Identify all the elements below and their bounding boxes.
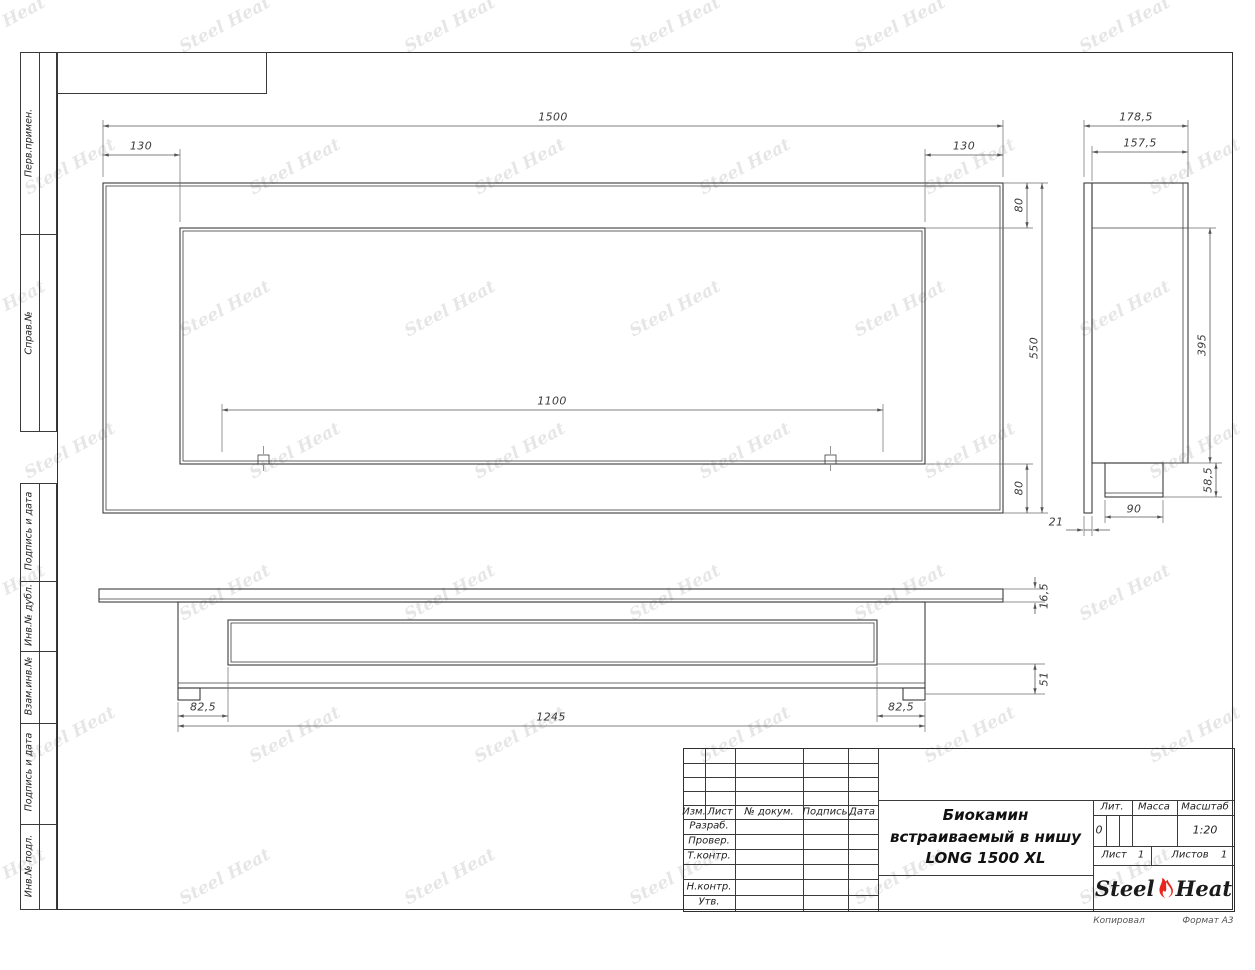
sidebar-label-vzam-inv: Взам.инв.№ (24, 657, 35, 715)
dim-front-right-offset: 130 (953, 140, 975, 153)
tb-col-izm: Изм. (682, 807, 706, 818)
watermark-text: Steel Heat (0, 0, 49, 57)
tb-sheet-value: 1 (1138, 850, 1144, 861)
tb-sheets-value: 1 (1221, 850, 1227, 861)
watermark-text: Steel Heat (626, 0, 724, 57)
sidebar-label-inv-podl: Инв.№ подл. (24, 835, 35, 898)
dim-bottom-flange-thickness: 16,5 (1038, 583, 1051, 609)
footer-format-label: Формат A3 (1182, 916, 1233, 926)
brand-logo: Steel Heat (1093, 865, 1234, 911)
tb-row-tcontrol: Т.контр. (687, 851, 730, 862)
document-title-line2: встраиваемый в нишу (890, 827, 1081, 849)
tb-scale-label: Масштаб (1181, 802, 1229, 813)
document-title-line3: LONG 1500 XL (926, 848, 1046, 870)
dim-side-overall-depth: 178,5 (1119, 111, 1153, 124)
document-title: Биокамин встраиваемый в нишу LONG 1500 X… (878, 800, 1093, 875)
corner-reference-box (57, 52, 267, 94)
dim-front-top-margin: 80 (1013, 198, 1026, 213)
tb-row-ncontrol: Н.контр. (687, 882, 732, 893)
tb-col-sign: Подпись (803, 807, 848, 818)
dim-bottom-left-inset: 82,5 (190, 701, 216, 714)
dim-side-body-depth: 157,5 (1123, 137, 1157, 150)
tb-col-list: Лист (707, 807, 732, 818)
sidebar-label-podpis-data-1: Подпись и дата (24, 492, 35, 571)
tb-row-approved: Утв. (699, 897, 720, 908)
dim-front-overall-width: 1500 (538, 111, 568, 124)
footer-copied-label: Копировал (1093, 916, 1144, 926)
tb-lit-value: 0 (1096, 824, 1103, 837)
watermark-text: Steel Heat (1076, 0, 1174, 57)
tb-col-doc: № докум. (744, 807, 793, 818)
dim-front-bottom-margin: 80 (1013, 481, 1026, 496)
tb-scale-value: 1:20 (1193, 824, 1218, 837)
tb-mass-label: Масса (1138, 802, 1170, 813)
dim-side-flange-offset: 21 (1049, 516, 1064, 529)
sidebar-label-sprav-no: Справ.№ (24, 311, 35, 354)
dim-bottom-right-inset: 82,5 (888, 701, 914, 714)
brand-heat: Heat (1176, 876, 1233, 901)
sidebar-label-inv-dubl: Инв.№ дубл. (24, 584, 35, 646)
sidebar-label-perv-primen: Перв.примен. (24, 109, 35, 177)
tb-lit-label: Лит. (1100, 802, 1123, 813)
brand-steel: Steel (1095, 876, 1155, 901)
dim-bottom-body-width: 1245 (536, 711, 566, 724)
dim-front-mount-span: 1100 (537, 395, 567, 408)
sidebar-label-podpis-data-2: Подпись и дата (24, 733, 35, 812)
tb-row-developed: Разраб. (689, 821, 728, 832)
dim-front-left-offset: 130 (130, 140, 152, 153)
tb-sheet-label: Лист (1101, 850, 1126, 861)
dim-side-box-height: 58,5 (1202, 467, 1215, 493)
tb-sheets-label: Листов (1171, 850, 1208, 861)
watermark-text: Steel Heat (851, 0, 949, 57)
title-block: Изм. Лист № докум. Подпись Дата Разраб. … (683, 748, 1235, 912)
flame-icon (1157, 877, 1174, 899)
tb-col-date: Дата (849, 807, 875, 818)
dim-front-panel-height: 550 (1028, 337, 1041, 359)
dim-bottom-body-depth: 51 (1038, 672, 1051, 687)
document-title-line1: Биокамин (943, 805, 1029, 827)
dim-side-box-width: 90 (1127, 503, 1142, 516)
dim-side-inner-height: 395 (1196, 334, 1209, 356)
watermark-text: Steel Heat (401, 0, 499, 57)
tb-row-checked: Провер. (688, 836, 730, 847)
drawing-sheet: Steel HeatSteel HeatSteel HeatSteel Heat… (0, 0, 1255, 970)
watermark-text: Steel Heat (176, 0, 274, 57)
